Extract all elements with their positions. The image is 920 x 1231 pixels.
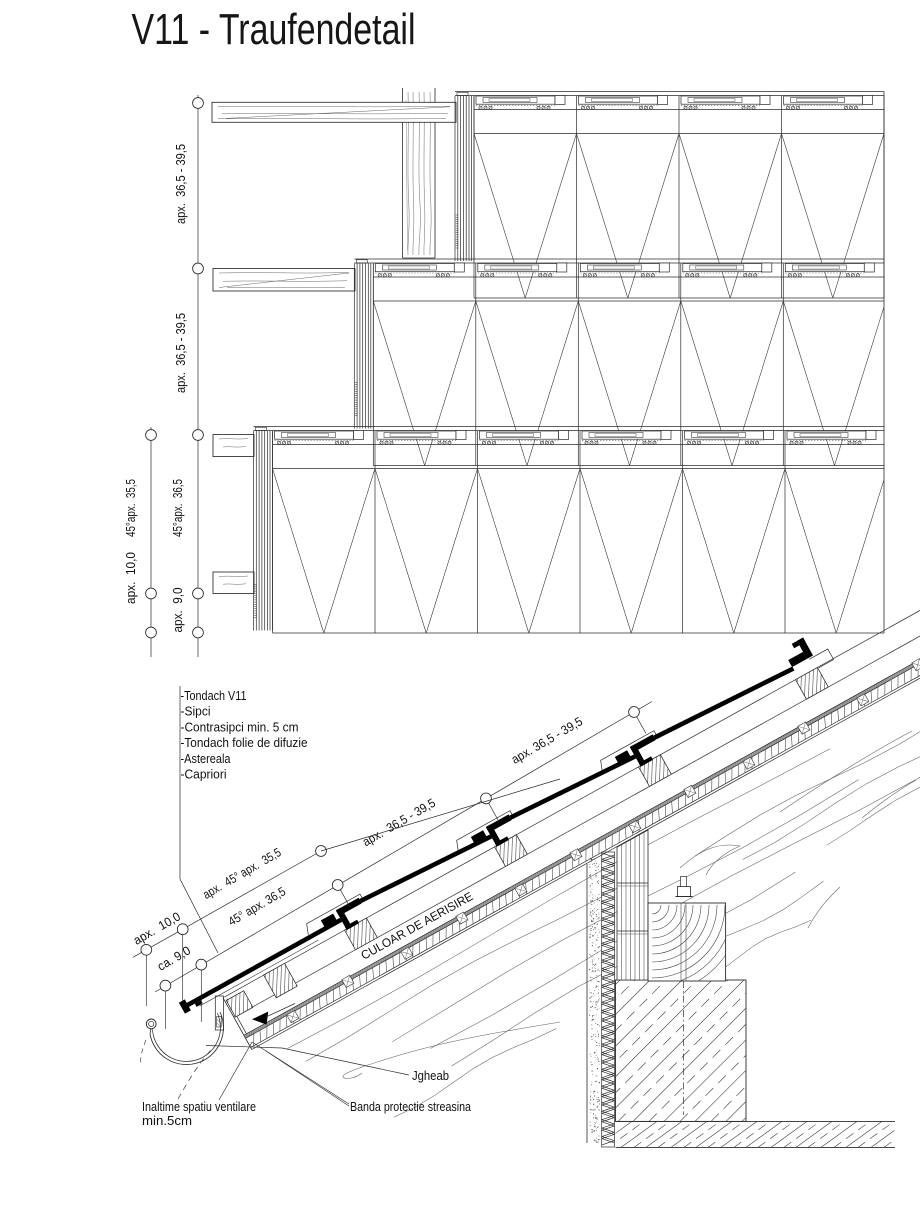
- svg-text:apx. 36,5 - 39,5: apx. 36,5 - 39,5: [174, 313, 188, 393]
- svg-text:45°apx. 36,5: 45°apx. 36,5: [171, 479, 185, 537]
- svg-text:-Astereala: -Astereala: [181, 751, 232, 766]
- svg-text:V11 - Traufendetail: V11 - Traufendetail: [132, 6, 416, 54]
- svg-text:-Tondach folie de difuzie: -Tondach folie de difuzie: [181, 735, 308, 750]
- svg-text:apx. 10,0: apx. 10,0: [124, 552, 138, 604]
- svg-text:-Contrasipci min. 5 cm: -Contrasipci min. 5 cm: [181, 719, 299, 734]
- svg-text:45°apx. 35,5: 45°apx. 35,5: [124, 479, 138, 537]
- svg-text:apx. 36,5 - 39,5: apx. 36,5 - 39,5: [174, 144, 188, 224]
- svg-text:Jgheab: Jgheab: [412, 1068, 449, 1083]
- svg-text:apx. 9,0: apx. 9,0: [171, 587, 185, 632]
- svg-text:Inaltime spatiu ventilare: Inaltime spatiu ventilare: [142, 1099, 256, 1114]
- svg-text:min.5cm: min.5cm: [142, 1113, 192, 1128]
- svg-text:-Capriori: -Capriori: [181, 767, 227, 782]
- svg-text:-Sipci: -Sipci: [181, 704, 211, 719]
- svg-text:Banda protectie streasina: Banda protectie streasina: [350, 1099, 472, 1114]
- svg-text:-Tondach V11: -Tondach V11: [181, 688, 247, 703]
